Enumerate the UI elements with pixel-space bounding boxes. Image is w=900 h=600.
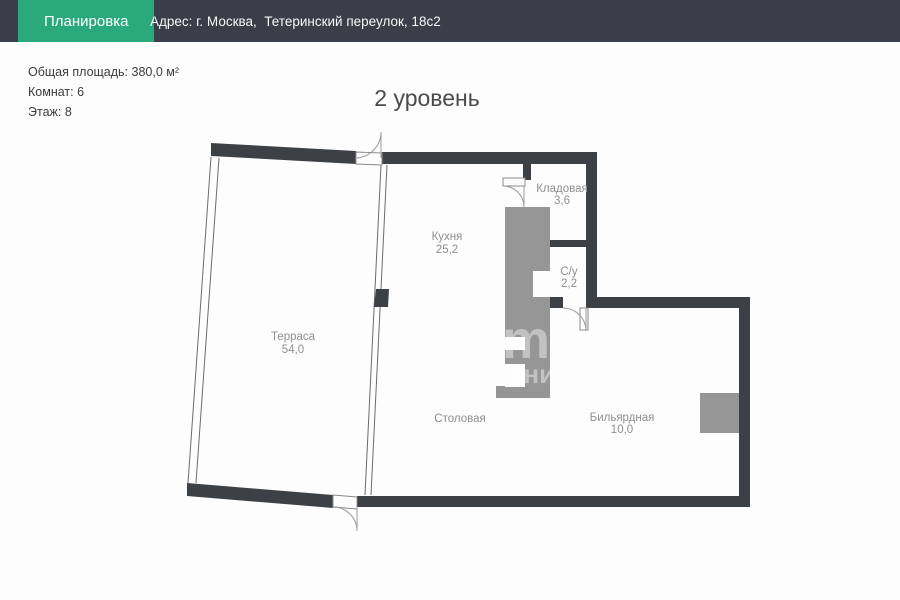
room-label-kitchen: Кухня 25,2 [432, 231, 463, 256]
room-name: Бильярдная [590, 412, 655, 424]
room-name: Столовая [434, 413, 485, 425]
terrace-glazing-walls [188, 157, 387, 495]
watermark-line2: ени [509, 359, 555, 389]
room-area: 10,0 [611, 424, 633, 436]
terrace-bottom-door [333, 495, 357, 531]
room-area: 54,0 [282, 344, 304, 356]
room-label-billiard: Бильярдная 10,0 [590, 412, 655, 436]
room-label-storage: Кладовая 3,6 [536, 183, 588, 207]
watermark: m ени [502, 310, 555, 389]
room-name: Терраса [271, 331, 316, 343]
terrace-top-door [355, 132, 382, 165]
room-name: Кладовая [536, 183, 588, 195]
storage-door [503, 178, 525, 207]
room-area: 25,2 [436, 244, 458, 256]
room-area: 2,2 [561, 278, 577, 290]
walls [187, 143, 750, 508]
room-area: 3,6 [554, 195, 570, 207]
room-label-terrace: Терраса 54,0 [271, 331, 316, 356]
room-name: Кухня [432, 231, 463, 243]
floor-plan: m ени Терраса 54,0 Кухня [0, 0, 900, 600]
room-label-dining: Столовая [434, 413, 485, 425]
billiard-block [700, 393, 739, 433]
bathroom-door [563, 308, 588, 331]
room-name: С/у [560, 266, 578, 278]
room-label-bathroom: С/у 2,2 [560, 266, 578, 290]
